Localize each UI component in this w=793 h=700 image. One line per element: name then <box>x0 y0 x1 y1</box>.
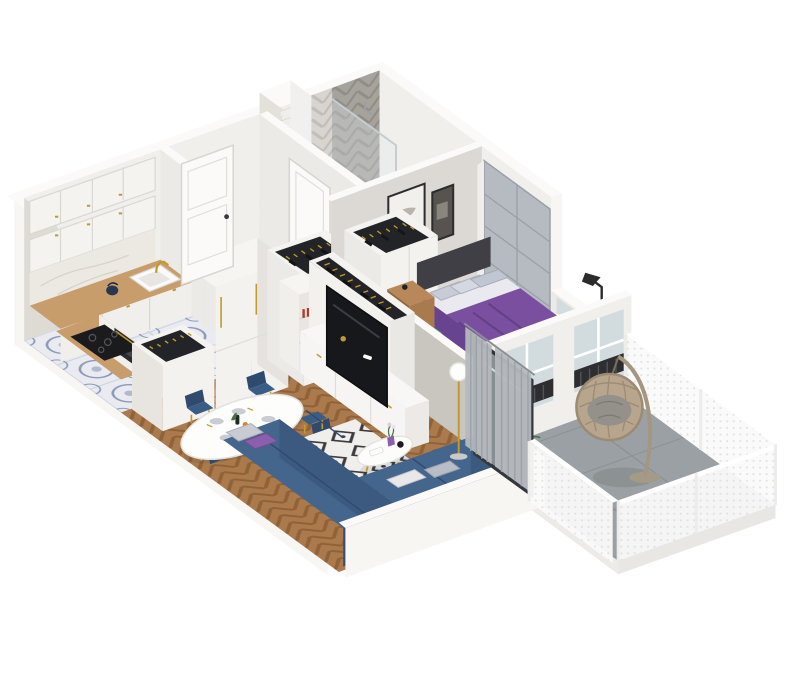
living-floor-lamp-base <box>450 453 468 460</box>
hanging-chair-cushion <box>587 395 631 426</box>
apartment-render-stage <box>0 0 793 700</box>
vase-bloom-1 <box>387 423 391 427</box>
black-bowl <box>397 441 404 448</box>
vase-bloom-2 <box>392 425 396 429</box>
front-door-handle <box>224 214 229 219</box>
tall-unit-1-front <box>216 274 252 414</box>
bookshelf-west-face <box>279 281 299 372</box>
place-setting-1 <box>209 417 224 425</box>
living-floor-lamp-globe <box>450 363 468 381</box>
place-setting-2 <box>231 408 246 416</box>
kettle <box>106 285 118 295</box>
sideboard-gold-cup <box>340 336 346 342</box>
ne-wall-cut-step-face <box>551 194 562 291</box>
apartment-3d-floorplan <box>0 0 793 700</box>
gray-wardrobe-side <box>477 161 484 291</box>
alarm-clock <box>402 284 408 290</box>
